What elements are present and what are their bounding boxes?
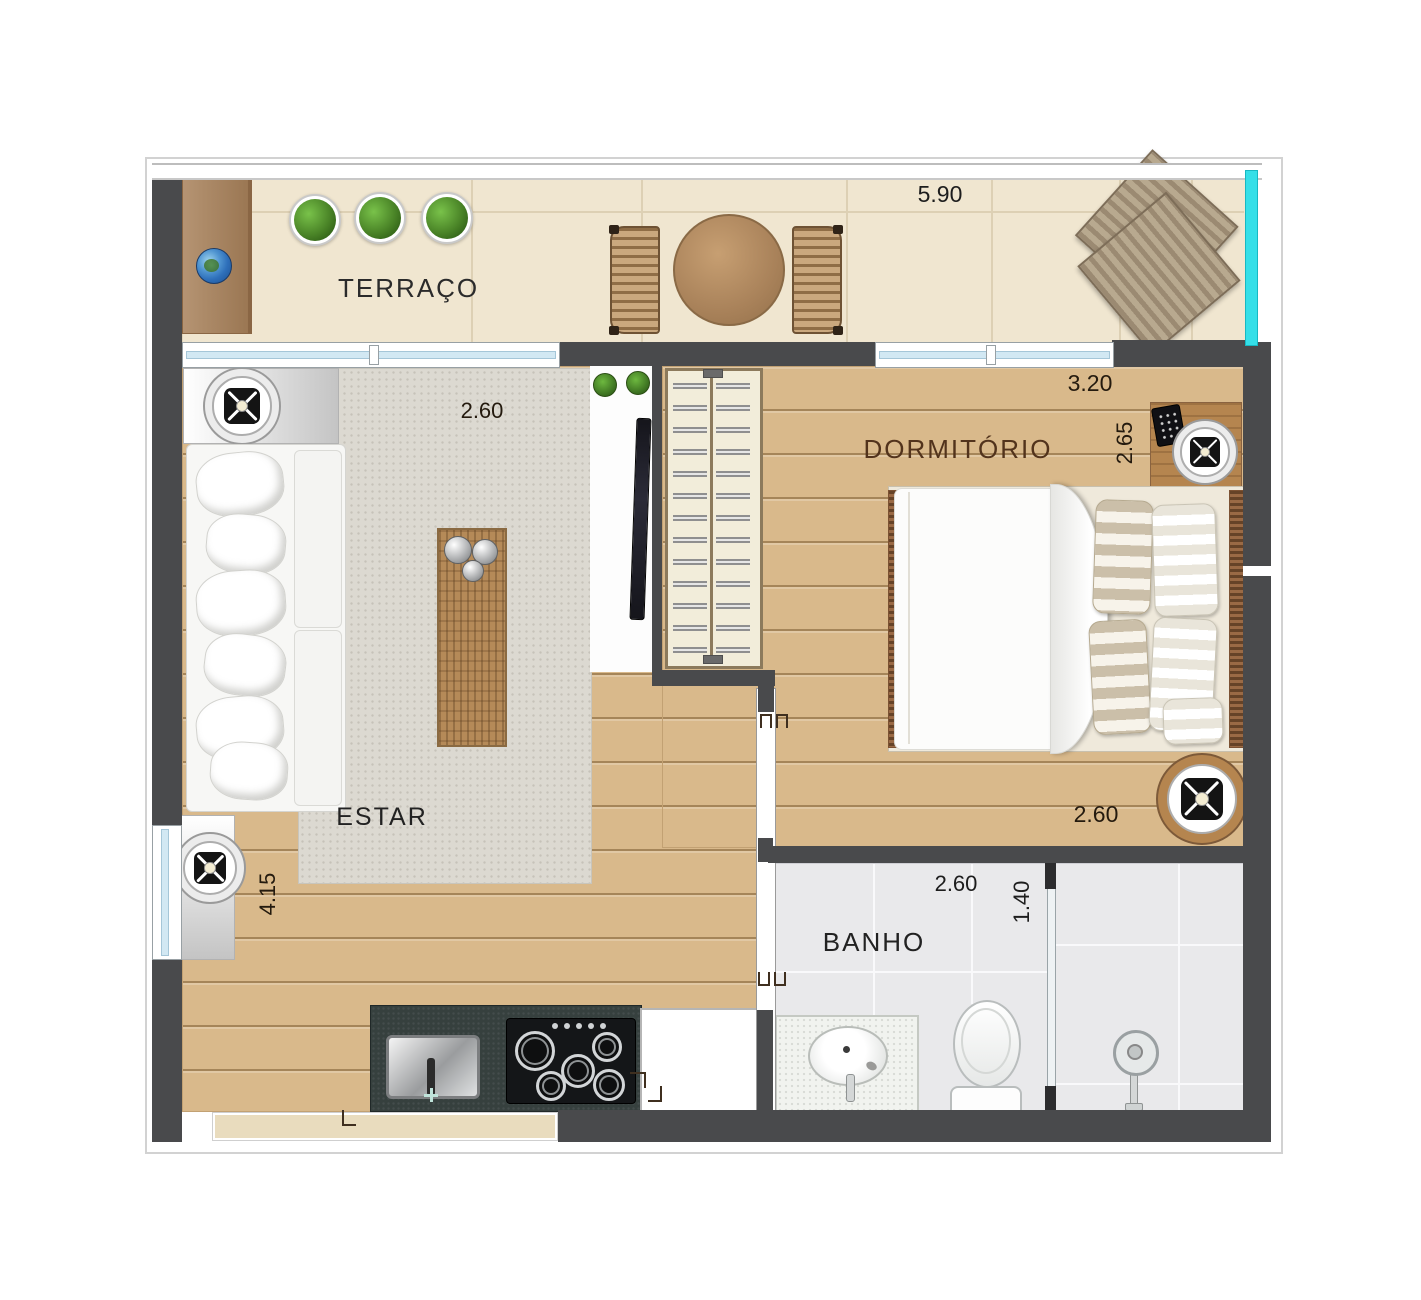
closet-hanger-bars bbox=[673, 383, 707, 653]
cooktop-knob bbox=[552, 1023, 558, 1029]
chair-hub bbox=[236, 400, 248, 412]
grout-line bbox=[775, 971, 1048, 973]
glass-cap bbox=[1045, 1086, 1056, 1112]
globe bbox=[196, 248, 232, 284]
sink-faucet bbox=[846, 1074, 855, 1102]
terrace-chair bbox=[792, 226, 842, 334]
wall-terrace-living bbox=[558, 342, 875, 366]
chair-seat bbox=[1181, 778, 1223, 820]
wall-right bbox=[1243, 342, 1271, 1142]
bed-pillow bbox=[1151, 503, 1219, 617]
terrace-tile-line bbox=[991, 177, 993, 345]
bed-sheet-line bbox=[908, 492, 910, 744]
small-plant bbox=[593, 373, 617, 397]
dim-dormitorio-width: 3.20 bbox=[1050, 370, 1130, 397]
chair-seat bbox=[224, 388, 260, 424]
chair-arm-cap bbox=[833, 225, 843, 234]
wall-top-right bbox=[1112, 340, 1256, 367]
door-stop bbox=[648, 1086, 662, 1102]
plant-foliage bbox=[294, 199, 336, 241]
burner bbox=[592, 1032, 622, 1062]
burner bbox=[593, 1069, 625, 1101]
swivel-chair bbox=[174, 832, 246, 904]
shower-head-center bbox=[1127, 1044, 1143, 1060]
grout-line bbox=[1178, 864, 1180, 1111]
closet-handle bbox=[703, 655, 723, 664]
dim-dormitorio-depth: 2.65 bbox=[1112, 413, 1138, 473]
terrace-chair bbox=[610, 226, 660, 334]
dim-terraco-width: 5.90 bbox=[900, 181, 980, 208]
wall-bath-left-lower bbox=[757, 1010, 773, 1112]
glass-cap bbox=[1045, 863, 1056, 889]
grout-line bbox=[1054, 944, 1244, 946]
room-label-banho: BANHO bbox=[804, 927, 944, 958]
faucet-handle bbox=[430, 1088, 433, 1102]
potted-plant bbox=[354, 192, 406, 244]
bedroom-window bbox=[875, 342, 1114, 368]
burner bbox=[515, 1031, 555, 1071]
swivel-chair bbox=[203, 367, 281, 445]
closet-divider bbox=[710, 371, 713, 660]
bed-duvet bbox=[894, 488, 1066, 750]
chair-seat bbox=[1190, 437, 1220, 467]
chair-arm-cap bbox=[609, 326, 619, 335]
wall-tv-divider bbox=[652, 366, 662, 672]
door-stop bbox=[342, 1110, 356, 1126]
door-stop bbox=[760, 714, 772, 728]
cooktop-knob bbox=[600, 1023, 606, 1029]
chair-hub bbox=[204, 862, 215, 873]
plant-foliage bbox=[359, 197, 401, 239]
chair-arm-cap bbox=[609, 225, 619, 234]
living-window bbox=[182, 342, 560, 368]
wall-notch bbox=[1243, 566, 1271, 576]
window-mullion bbox=[369, 345, 379, 365]
dim-estar-width: 2.60 bbox=[442, 398, 522, 424]
burner bbox=[561, 1054, 595, 1088]
terrace-tile-line bbox=[471, 177, 473, 345]
bed-pillow bbox=[1092, 499, 1154, 615]
window-glass bbox=[161, 829, 169, 956]
potted-plant bbox=[421, 192, 473, 244]
cooktop-knob bbox=[576, 1023, 582, 1029]
room-label-estar: ESTAR bbox=[322, 803, 442, 832]
wall-bottom bbox=[558, 1110, 1271, 1142]
potted-plant bbox=[289, 194, 341, 246]
dim-dormitorio-foot: 2.60 bbox=[1056, 801, 1136, 828]
dim-banho-depth: 1.40 bbox=[1009, 872, 1035, 932]
grout-line bbox=[1054, 1083, 1244, 1085]
toilet-seat bbox=[961, 1008, 1011, 1074]
room-label-dormitorio: DORMITÓRIO bbox=[858, 434, 1058, 465]
small-plant bbox=[626, 371, 650, 395]
entry-door bbox=[213, 1113, 557, 1140]
door-stop bbox=[630, 1072, 646, 1088]
bed-pillow bbox=[1088, 619, 1152, 736]
wall-left bbox=[152, 163, 182, 1142]
dim-banho-width: 2.60 bbox=[916, 871, 996, 897]
terrace-tile-line bbox=[846, 177, 848, 345]
shower-glass-partition bbox=[1047, 863, 1056, 1114]
closet bbox=[665, 368, 763, 669]
wall-bath-top bbox=[768, 846, 1271, 863]
dim-estar-depth: 4.15 bbox=[255, 864, 281, 924]
door-stop bbox=[774, 972, 786, 986]
closet-handle bbox=[703, 369, 723, 378]
closet-hanger-bars bbox=[716, 383, 750, 653]
terrace-table bbox=[673, 214, 785, 326]
floor-plan-canvas: TERRAÇO 5.90 ESTAR 2.60 4.15 DORMITÓRIO … bbox=[0, 0, 1421, 1300]
desk-chair bbox=[1172, 419, 1238, 485]
sink-drain bbox=[843, 1046, 850, 1053]
chair-arm-cap bbox=[833, 326, 843, 335]
living-side-window bbox=[152, 825, 182, 960]
sofa-pillow bbox=[208, 739, 290, 802]
sofa-cushion bbox=[294, 450, 342, 628]
door-stop bbox=[776, 714, 788, 728]
terrace-top-railing bbox=[152, 163, 1262, 180]
wall-closet-bottom bbox=[652, 670, 775, 686]
bowl bbox=[462, 560, 484, 582]
sofa-cushion bbox=[294, 630, 342, 806]
bed-pillow bbox=[1162, 697, 1224, 745]
cooktop-knob bbox=[564, 1023, 570, 1029]
room-label-terraco: TERRAÇO bbox=[338, 273, 478, 304]
cooktop-knob bbox=[588, 1023, 594, 1029]
chair-seat bbox=[194, 852, 227, 885]
glass-railing bbox=[1245, 170, 1258, 346]
bedroom-chair bbox=[1156, 753, 1248, 845]
wall-door-jamb bbox=[758, 670, 774, 712]
plant-foliage bbox=[426, 197, 468, 239]
bowl bbox=[444, 536, 472, 564]
window-mullion bbox=[986, 345, 996, 365]
door-stop bbox=[758, 972, 770, 986]
